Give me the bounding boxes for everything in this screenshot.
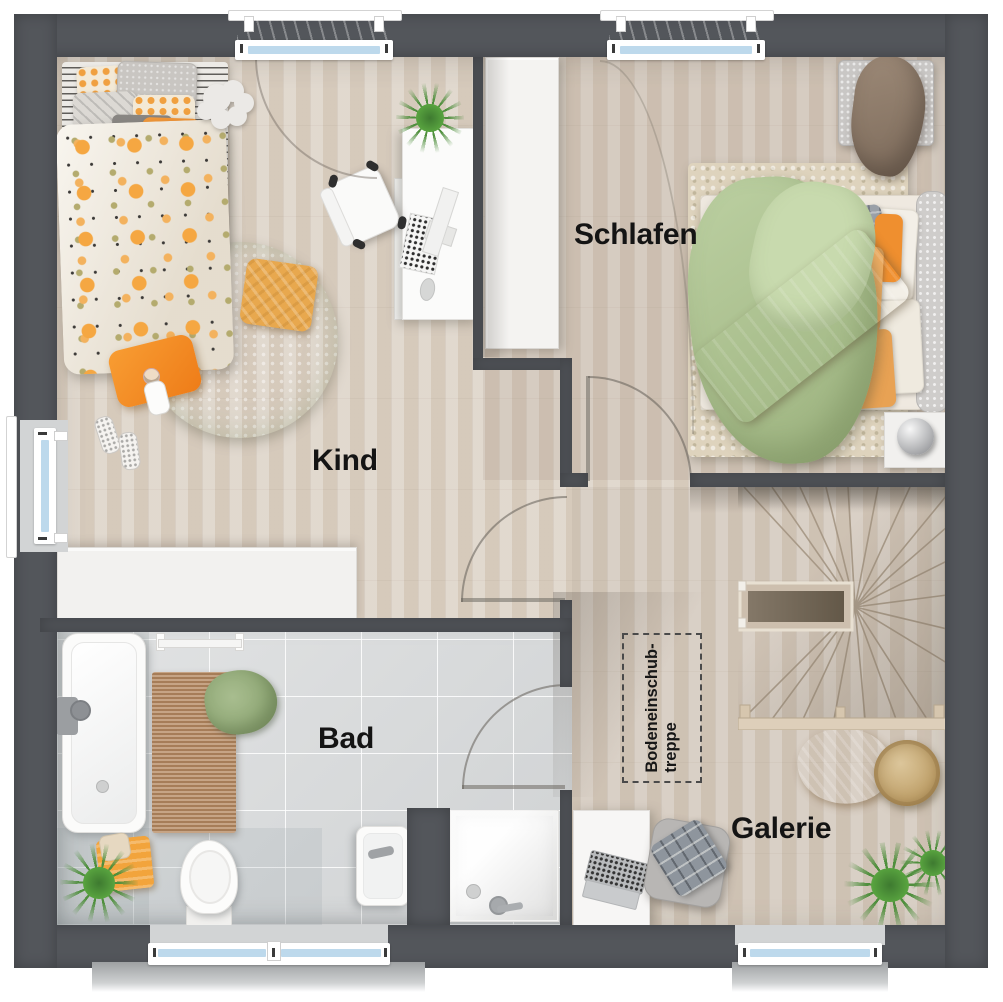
window-glass bbox=[281, 949, 381, 957]
window-bottom-bad-sill bbox=[92, 962, 425, 992]
desk-plant bbox=[396, 82, 464, 154]
window-glass bbox=[248, 46, 380, 54]
floor-plan: Bodeneinschub- treppe Kind Schlafen Bad … bbox=[0, 0, 1003, 1002]
wall-bad-galerie-lower bbox=[560, 790, 572, 925]
window-glass bbox=[620, 46, 752, 54]
attic-hatch-line1: Bodeneinschub- bbox=[643, 643, 662, 772]
window-glass bbox=[41, 440, 49, 532]
toilet bbox=[180, 840, 238, 914]
window-latch bbox=[757, 44, 760, 53]
window-latch bbox=[384, 948, 387, 957]
wall-jog bbox=[473, 358, 572, 370]
window-glass bbox=[750, 949, 870, 957]
wall-right bbox=[945, 14, 988, 968]
window-latch bbox=[385, 44, 388, 53]
woven-basket bbox=[874, 740, 940, 806]
room-label-galerie: Galerie bbox=[731, 812, 831, 846]
window-bottom-galerie-reveal bbox=[735, 925, 885, 945]
window-latch bbox=[153, 948, 156, 957]
window-top-schlafen-awning bbox=[609, 17, 764, 42]
wall-hall-schlafen bbox=[560, 358, 572, 487]
window-glass bbox=[158, 949, 266, 957]
sink-basin bbox=[363, 833, 403, 899]
window-top-kind-awning bbox=[237, 17, 392, 42]
room-label-bad: Bad bbox=[318, 722, 374, 756]
attic-hatch-line2: treppe bbox=[662, 643, 681, 772]
window-bottom-galerie-sill bbox=[732, 962, 888, 992]
sink bbox=[356, 826, 410, 906]
wall-nub bbox=[560, 473, 588, 487]
window-latch bbox=[272, 948, 275, 957]
window-latch bbox=[38, 537, 47, 540]
window-latch bbox=[240, 44, 243, 53]
window-latch bbox=[612, 44, 615, 53]
attic-hatch-outline: Bodeneinschub- treppe bbox=[622, 633, 702, 783]
window-left-sill-bar bbox=[6, 416, 17, 558]
sphere-lamp bbox=[897, 418, 934, 455]
bathtub-basin bbox=[71, 642, 137, 824]
winder-staircase bbox=[738, 487, 947, 730]
rug-pillow-orange bbox=[239, 257, 319, 332]
room-label-schlafen: Schlafen bbox=[574, 218, 697, 252]
attic-hatch-label: Bodeneinschub- treppe bbox=[643, 643, 681, 772]
wall-kind-schlafen bbox=[473, 57, 483, 370]
kind-sideboard bbox=[57, 547, 357, 622]
bathroom-plant bbox=[60, 843, 138, 923]
window-latch bbox=[743, 948, 746, 957]
shower-drain bbox=[466, 884, 481, 899]
wall-bad-galerie-upper bbox=[560, 632, 572, 687]
bath-shower-head bbox=[70, 700, 91, 721]
schlafen-wardrobe bbox=[485, 57, 559, 349]
kind-polka-dot-duvet bbox=[56, 119, 235, 375]
window-tick bbox=[54, 533, 68, 543]
bathtub-drain bbox=[96, 780, 109, 793]
toilet-seat bbox=[189, 850, 231, 904]
room-label-kind: Kind bbox=[312, 444, 378, 478]
wall-kind-bad bbox=[40, 618, 572, 632]
cloud-mirror bbox=[193, 74, 257, 136]
wall-schlafen-galerie bbox=[690, 473, 945, 487]
window-tick bbox=[54, 431, 68, 441]
stair-railing bbox=[738, 718, 947, 730]
window-latch bbox=[38, 432, 47, 435]
window-latch bbox=[874, 948, 877, 957]
wall-shower bbox=[407, 808, 450, 925]
towel-rail bbox=[158, 639, 242, 648]
wall-top bbox=[14, 14, 988, 57]
